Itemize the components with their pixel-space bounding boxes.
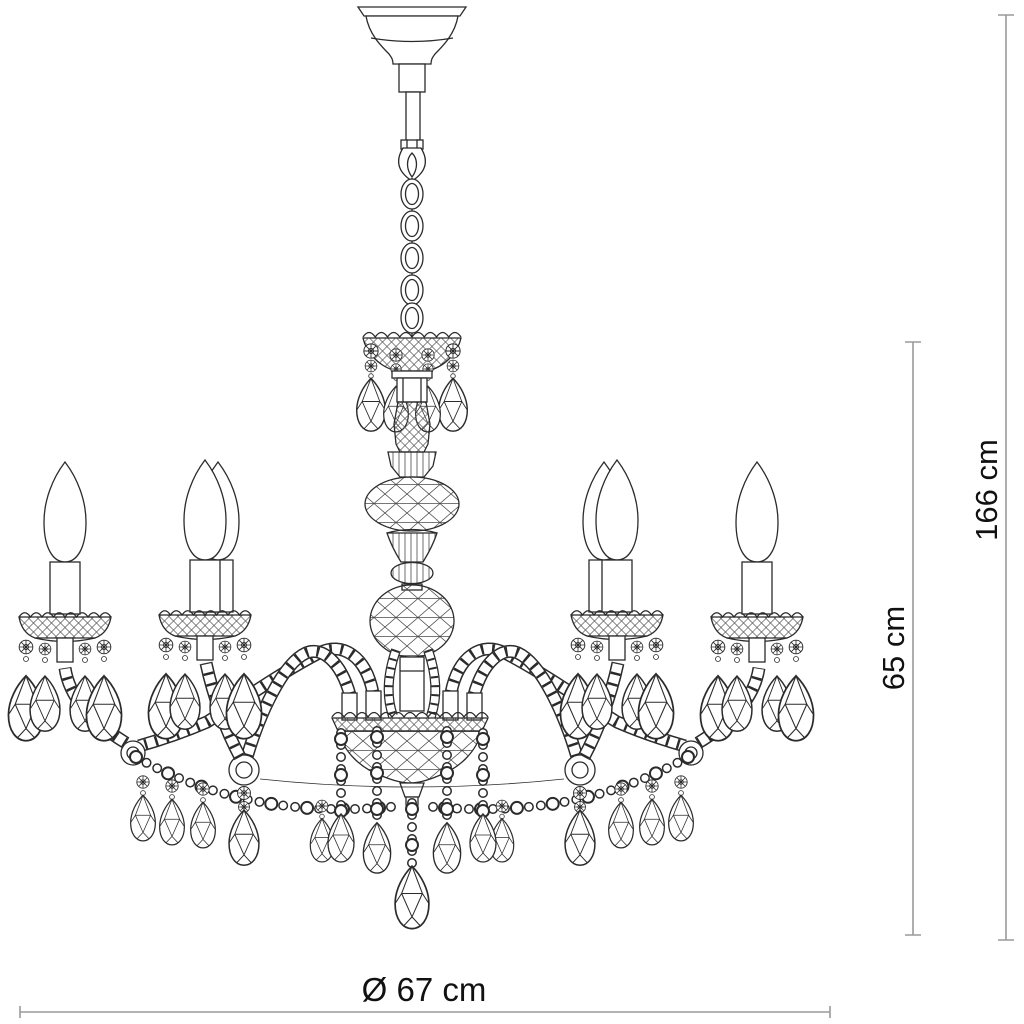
chandelier-drawing: 166 cm 65 cm Ø 67 cm: [0, 0, 1024, 1024]
diameter-label: Ø 67 cm: [362, 971, 487, 1008]
candle-outer-left: [8, 462, 121, 741]
center-bottom-drop: [395, 866, 429, 928]
candle-inner-right: [560, 460, 673, 739]
arm-scroll-curl: [229, 755, 259, 785]
candle-inner-left: [148, 460, 261, 739]
fixture-height-label: 65 cm: [876, 606, 911, 690]
suspension-hook: [399, 140, 426, 181]
overall-height-label: 166 cm: [969, 439, 1004, 541]
ceiling-canopy: [358, 7, 466, 140]
center-bowl: [332, 713, 488, 806]
candle-outer-right: [700, 462, 813, 741]
suspension-chain: [401, 178, 423, 336]
chandelier-dimension-diagram: 166 cm 65 cm Ø 67 cm: [0, 0, 1024, 1024]
